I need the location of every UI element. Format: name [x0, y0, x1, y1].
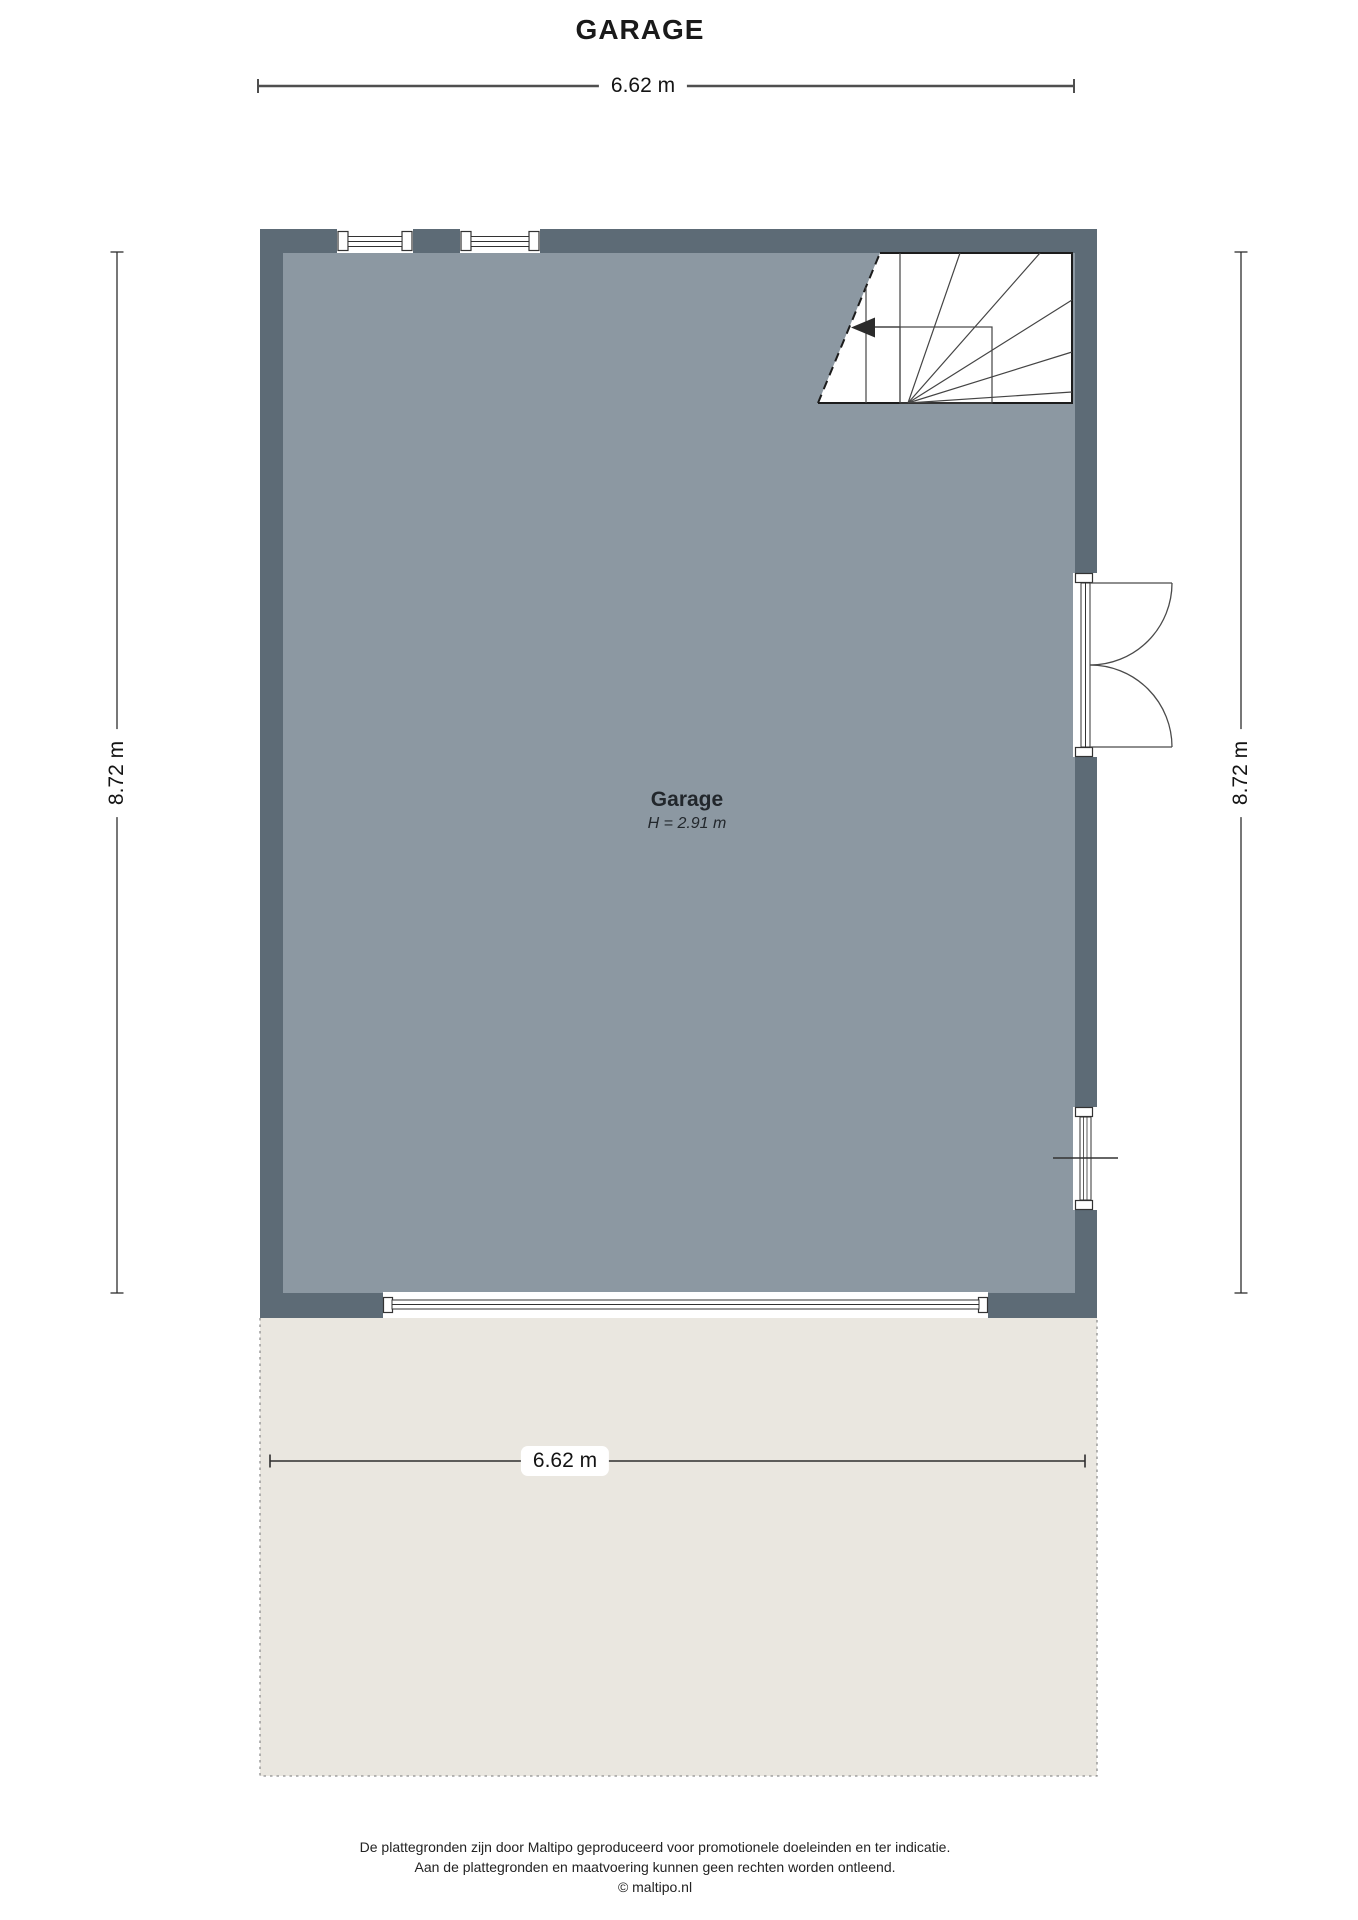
floor-plan-page: GARAGE 6.62 m 6.62 m 8.72 m 8.72 m Garag… — [0, 0, 1358, 1920]
room-label: Garage H = 2.91 m — [648, 788, 727, 834]
garage-floor — [283, 253, 1075, 1293]
top-window-2 — [460, 229, 540, 253]
room-name: Garage — [648, 788, 727, 812]
garage-door — [383, 1292, 988, 1318]
double-door — [1073, 573, 1172, 757]
page-title: GARAGE — [576, 14, 705, 46]
dimension-label-top: 6.62 m — [599, 73, 687, 99]
door-swing-arcs — [1090, 583, 1172, 747]
dimension-label-right: 8.72 m — [1228, 729, 1254, 817]
disclaimer-footer: De plattegronden zijn door Maltipo gepro… — [0, 1837, 1310, 1897]
floor-plan-drawing — [0, 0, 1358, 1920]
disclaimer-line-2: Aan de plattegronden en maatvoering kunn… — [0, 1857, 1310, 1877]
top-window-1 — [337, 229, 413, 253]
terrace-area — [260, 1318, 1097, 1776]
room-ceiling-height: H = 2.91 m — [648, 815, 727, 833]
dimension-label-bottom: 6.62 m — [521, 1446, 609, 1476]
copyright-line: © maltipo.nl — [0, 1877, 1310, 1897]
dimension-label-left: 8.72 m — [104, 729, 130, 817]
disclaimer-line-1: De plattegronden zijn door Maltipo gepro… — [0, 1837, 1310, 1857]
